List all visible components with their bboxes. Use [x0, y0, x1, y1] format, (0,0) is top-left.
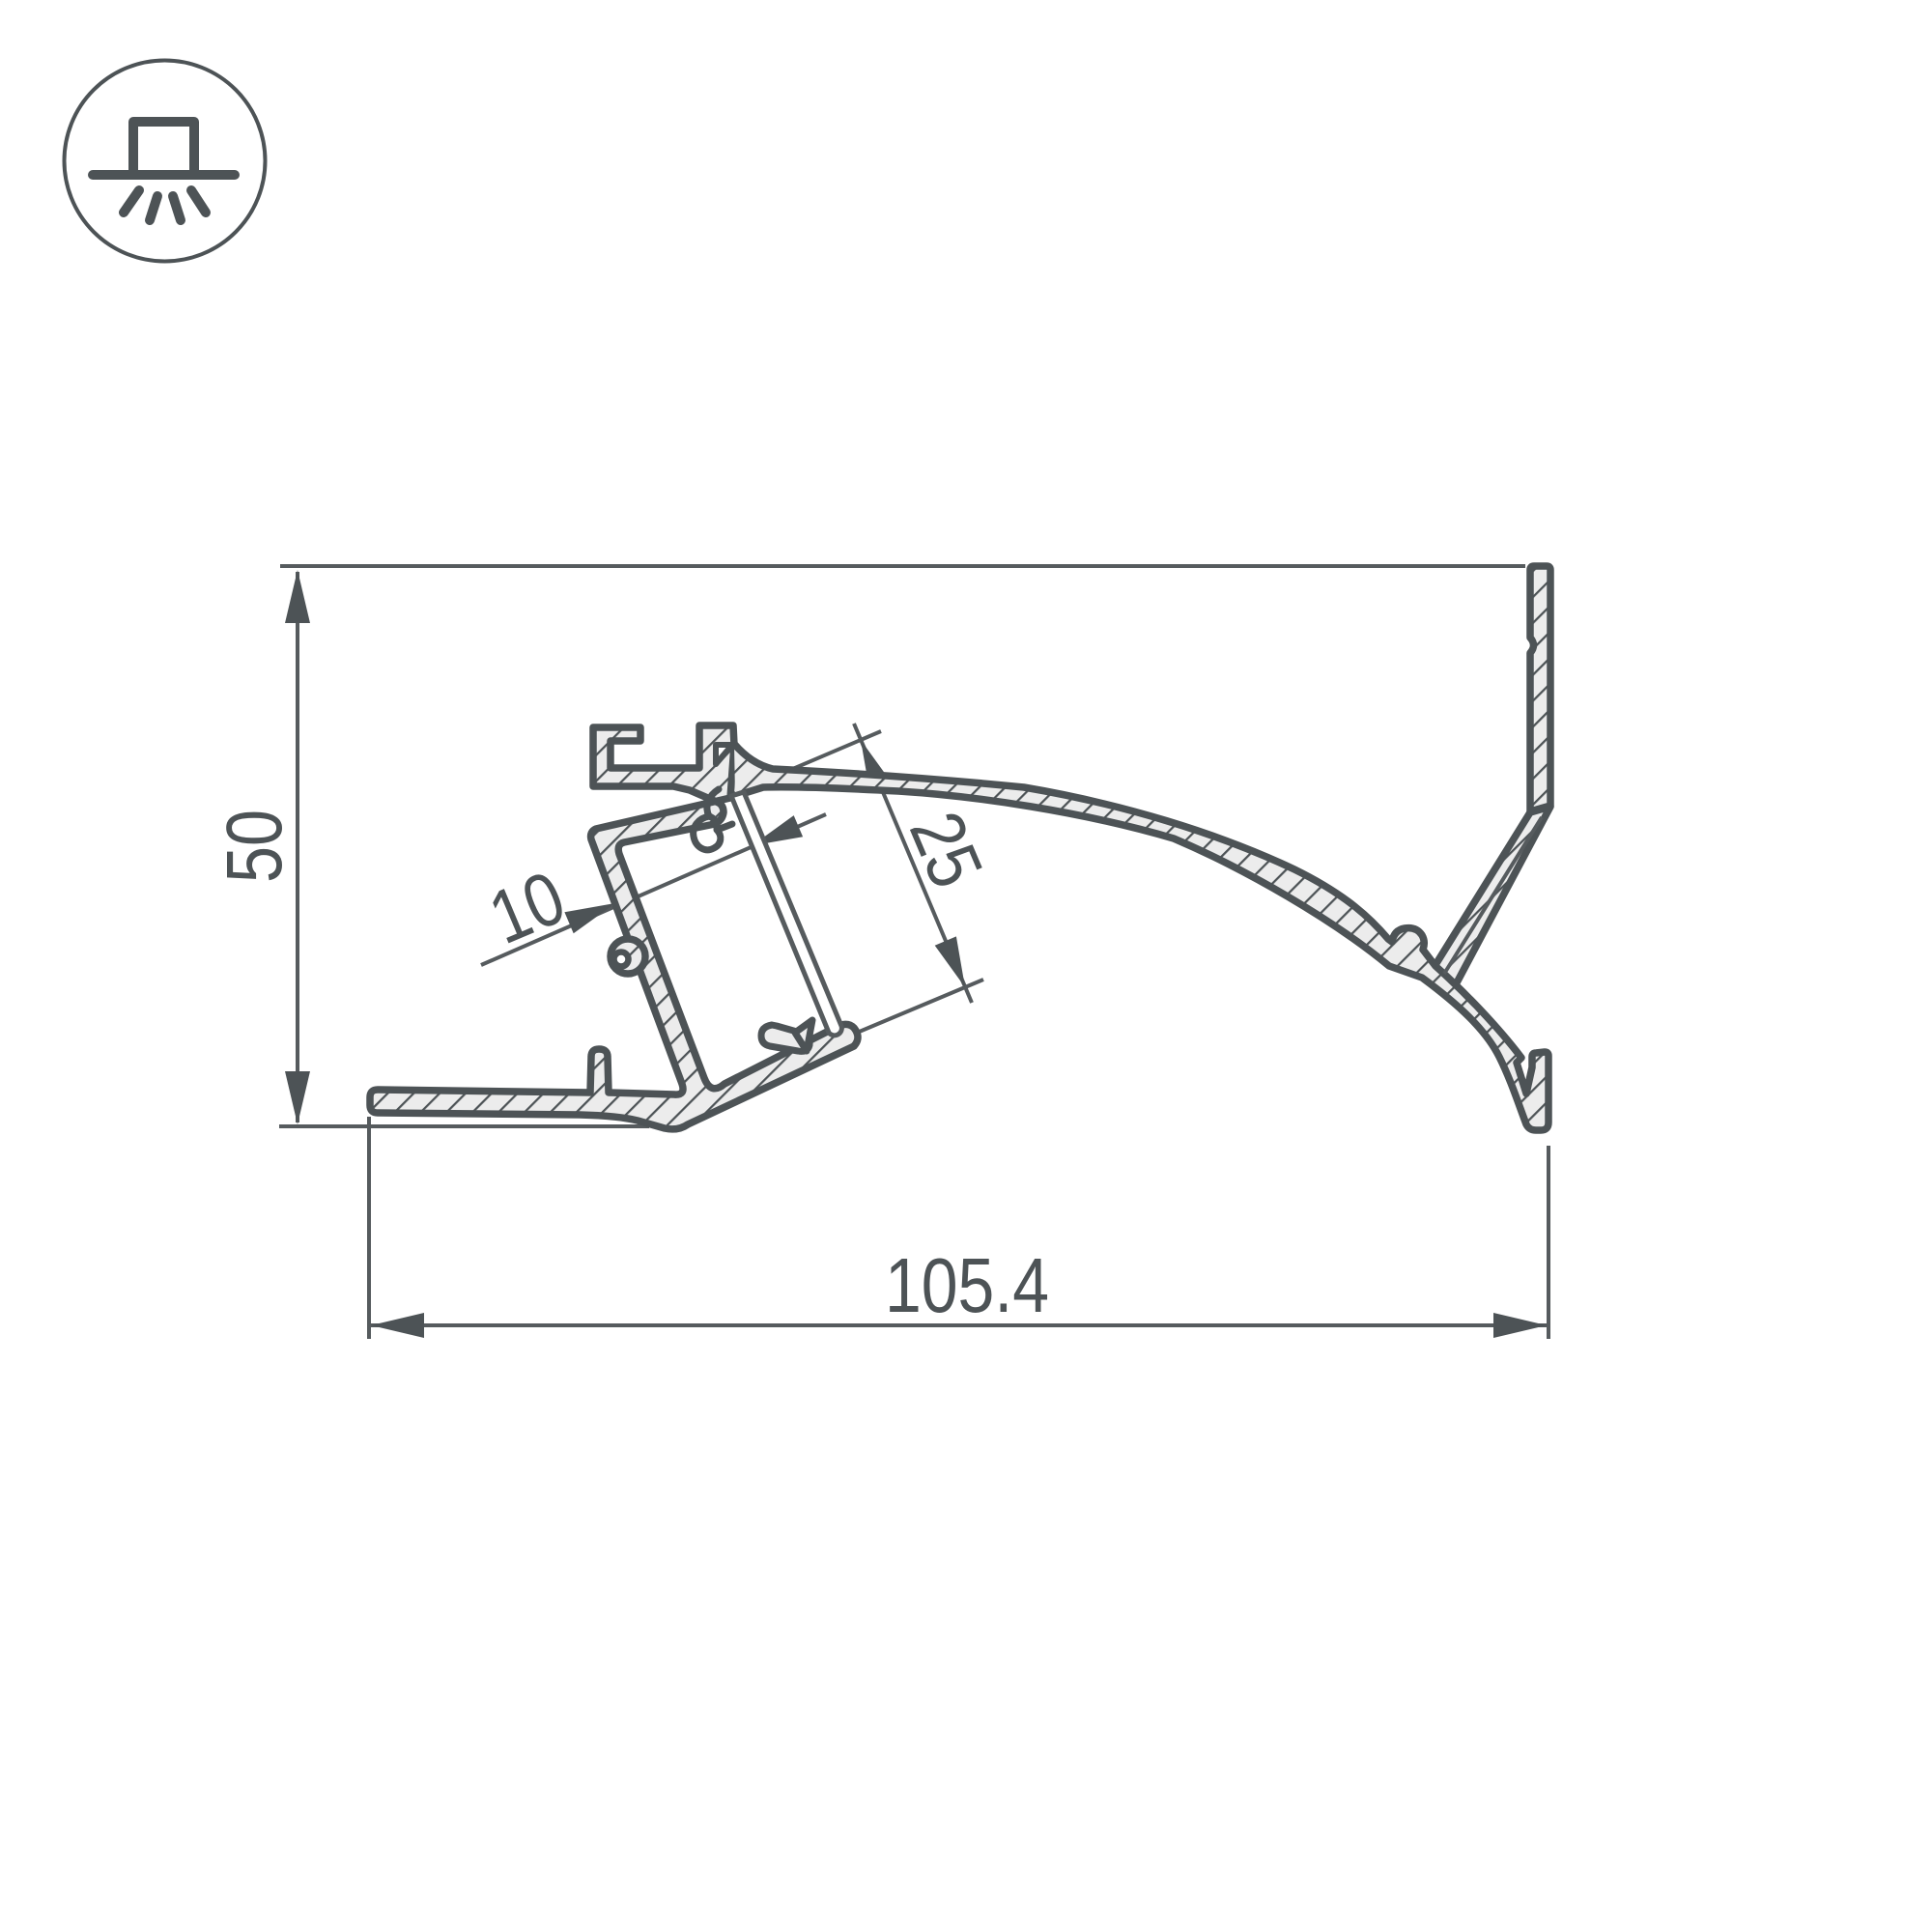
- svg-text:105.4: 105.4: [885, 1242, 1049, 1328]
- svg-text:50: 50: [211, 810, 298, 883]
- svg-text:10: 10: [477, 854, 576, 960]
- svg-text:25: 25: [894, 800, 1000, 898]
